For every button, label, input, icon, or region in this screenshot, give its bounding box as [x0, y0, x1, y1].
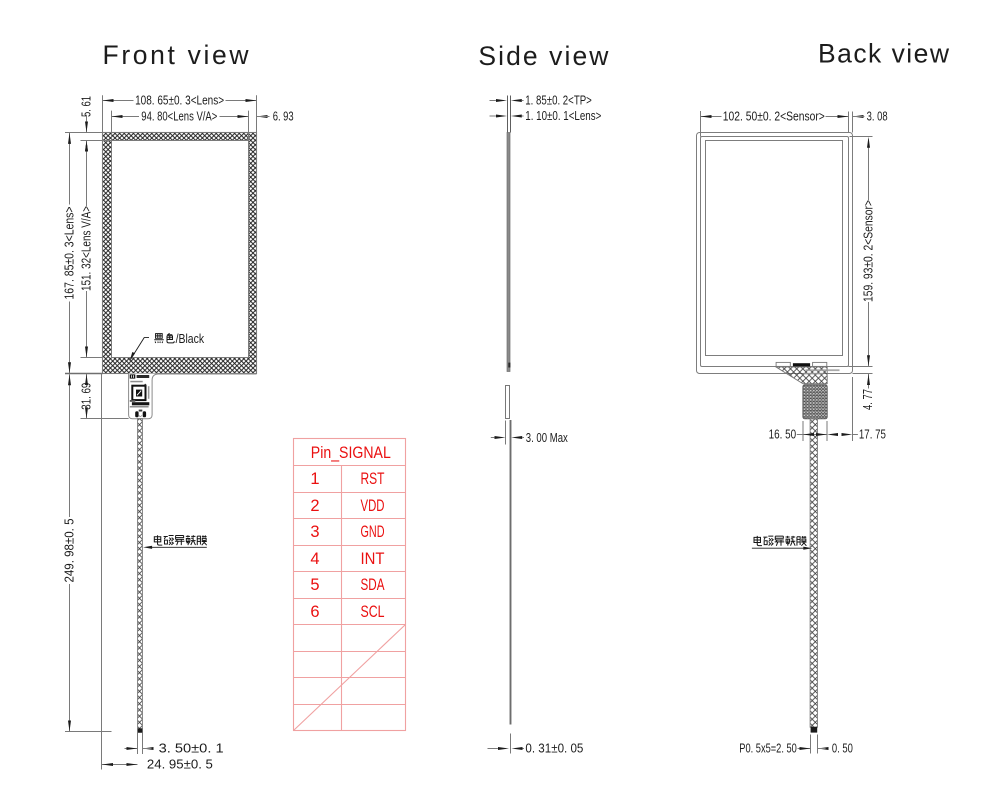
svg-text:VDD: VDD [361, 497, 385, 515]
svg-text:4: 4 [310, 550, 319, 568]
svg-text:3. 50±0. 1: 3. 50±0. 1 [159, 742, 224, 756]
svg-text:167. 85±0. 3<Lens>: 167. 85±0. 3<Lens> [63, 207, 77, 300]
svg-text:1: 1 [310, 470, 319, 488]
svg-text:2: 2 [310, 497, 319, 515]
svg-text:RST: RST [361, 470, 385, 488]
svg-text:159. 93±0. 2<Sensor>: 159. 93±0. 2<Sensor> [862, 200, 876, 302]
svg-text:Side view: Side view [478, 41, 609, 71]
svg-text:3: 3 [310, 523, 319, 541]
svg-text:GND: GND [361, 523, 385, 541]
svg-text:249. 98±0. 5: 249. 98±0. 5 [63, 518, 77, 582]
svg-text:6. 93: 6. 93 [273, 110, 294, 124]
svg-text:5: 5 [310, 576, 319, 594]
svg-text:94. 80<Lens V/A>: 94. 80<Lens V/A> [141, 110, 217, 124]
svg-text:1. 10±0. 1<Lens>: 1. 10±0. 1<Lens> [525, 109, 601, 123]
svg-text:1. 85±0. 2<TP>: 1. 85±0. 2<TP> [525, 94, 592, 108]
svg-text:Pin_SIGNAL: Pin_SIGNAL [311, 444, 391, 462]
svg-text:6: 6 [310, 603, 319, 621]
svg-text:SCL: SCL [361, 603, 385, 621]
svg-text:4. 77: 4. 77 [861, 389, 875, 410]
svg-text:31. 69: 31. 69 [80, 383, 94, 410]
svg-text:0. 31±0. 05: 0. 31±0. 05 [525, 742, 583, 756]
svg-text:102. 50±0. 2<Sensor>: 102. 50±0. 2<Sensor> [723, 110, 825, 124]
svg-text:INT: INT [361, 550, 385, 568]
svg-text:SDA: SDA [361, 576, 385, 594]
svg-text:0. 50: 0. 50 [832, 742, 853, 756]
svg-text:17. 75: 17. 75 [859, 428, 886, 442]
svg-text:Back view: Back view [818, 39, 950, 69]
svg-text:108. 65±0. 3<Lens>: 108. 65±0. 3<Lens> [135, 94, 224, 108]
svg-text:/Black: /Black [176, 332, 205, 346]
svg-text:24. 95±0. 5: 24. 95±0. 5 [147, 758, 213, 772]
svg-text:5. 61: 5. 61 [80, 96, 94, 117]
svg-text:P0. 5x5=2. 50: P0. 5x5=2. 50 [739, 742, 797, 756]
svg-text:151. 32<Lens V/A>: 151. 32<Lens V/A> [80, 206, 94, 291]
svg-text:16. 50: 16. 50 [769, 428, 797, 442]
svg-text:3. 00 Max: 3. 00 Max [526, 431, 569, 445]
svg-text:3. 08: 3. 08 [867, 110, 888, 124]
